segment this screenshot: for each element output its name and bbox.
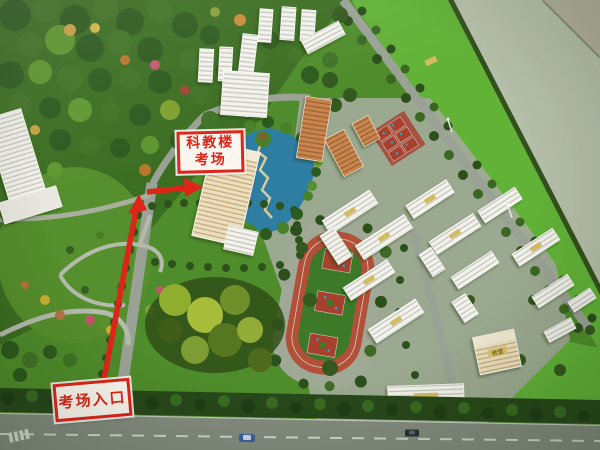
campus-model-photo: 食堂 [0, 0, 600, 450]
car [239, 434, 255, 443]
car [405, 430, 419, 437]
exam-entrance-label: 考场入口 [52, 378, 132, 423]
canteen-building: 食堂 [473, 329, 522, 375]
exam-building-label-line1: 科教楼 [180, 134, 241, 153]
pavilion [259, 134, 267, 141]
exam-entrance-label-text: 考场入口 [56, 388, 128, 413]
central-grove [145, 277, 285, 373]
exam-building-label: 科教楼 考场 [176, 130, 244, 174]
exam-building-label-line2: 考场 [180, 151, 241, 170]
